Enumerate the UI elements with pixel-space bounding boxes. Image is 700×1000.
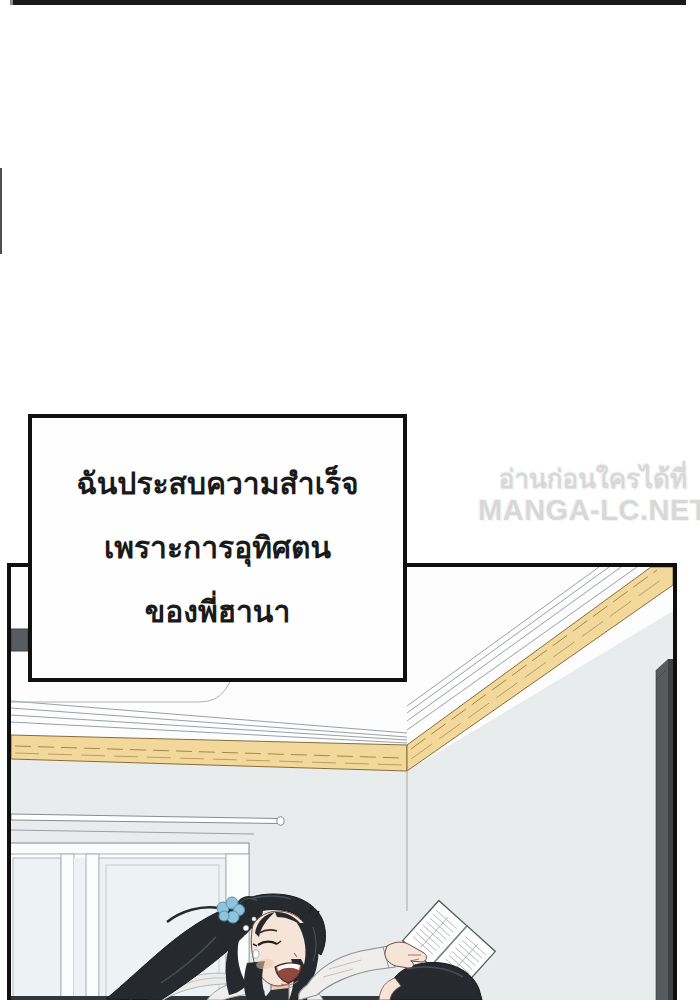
tear-sparkle bbox=[252, 917, 256, 921]
speech-bubble-line: ของพี่ฮานา bbox=[145, 580, 290, 644]
site-watermark: อ่านก่อนใครได้ที่ MANGA-LC.NET bbox=[468, 464, 700, 527]
watermark-site-name: MANGA-LC.NET bbox=[468, 494, 700, 527]
door-frame bbox=[656, 659, 673, 1000]
manga-page: อ่านก่อนใครได้ที่ MANGA-LC.NET bbox=[0, 0, 700, 1000]
speech-bubble: ฉันประสบความสำเร็จ เพราะการอุทิศตน ของพี… bbox=[28, 414, 407, 682]
rod-mount-block bbox=[11, 629, 28, 651]
tear-drop bbox=[253, 950, 259, 958]
panel-divider-bar bbox=[10, 0, 686, 5]
watermark-tagline: อ่านก่อนใครได้ที่ bbox=[468, 464, 700, 494]
left-edge-mark bbox=[0, 168, 2, 254]
tear-sparkle bbox=[243, 925, 248, 930]
speech-bubble-line: เพราะการอุทิศตน bbox=[104, 516, 331, 580]
speech-bubble-line: ฉันประสบความสำเร็จ bbox=[76, 452, 358, 516]
